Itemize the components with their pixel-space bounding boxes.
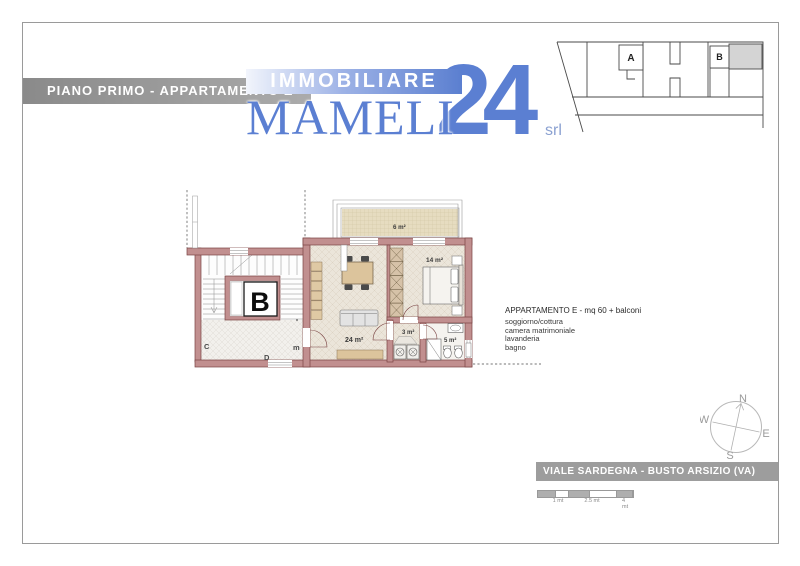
floor-plan: 6 m² 24 m² 14 m² 3 m² 5 m² C m D B [183, 183, 543, 378]
elevator-door [231, 282, 242, 315]
living-area-label: 24 m² [345, 337, 364, 344]
sofa [340, 310, 378, 326]
compass-rose: N W E S [700, 391, 776, 467]
site-unit-a-label: A [627, 53, 634, 64]
description-line: bagno [505, 344, 715, 353]
compass-east-label: E [762, 428, 769, 440]
site-unit-b-label: B [716, 52, 723, 62]
flyer-page: A B PIANO PRIMO - APPARTAMENTO E IMMOBIL… [0, 0, 800, 566]
bathroom-area-label: 5 m² [444, 337, 456, 344]
corridor-floor [201, 320, 303, 360]
scale-bar-segments [537, 490, 634, 498]
letter-c-label: C [204, 342, 210, 351]
logo-name: MAMELI [246, 92, 455, 142]
radiator [466, 343, 471, 357]
bedroom-area-label: 14 m² [426, 257, 444, 264]
description-line: lavanderia [505, 335, 715, 344]
apartment-description-title: APPARTAMENTO E - mq 60 + balconi [505, 306, 715, 315]
balcony-floor [342, 209, 458, 236]
bidet [455, 348, 463, 358]
wardrobe [390, 248, 403, 317]
scale-bar: 1 mt 2.5 mt 4 mt [537, 490, 637, 508]
site-gray-block [729, 44, 762, 69]
toilet [444, 348, 452, 358]
elevator-label: B [250, 287, 270, 317]
compass-needle [708, 399, 765, 456]
sideboard [337, 350, 383, 359]
scale-label-1: 1 mt [553, 498, 564, 504]
compass-west-label: W [700, 414, 710, 426]
letter-d-label: D [264, 353, 270, 362]
laundry-area-label: 3 m² [402, 329, 414, 336]
scale-label-3: 4 mt [622, 498, 632, 510]
site-plan: A B [548, 25, 780, 137]
apartment-description: APPARTAMENTO E - mq 60 + balconi soggior… [505, 306, 715, 352]
address-banner: VIALE SARDEGNA - BUSTO ARSIZIO (VA) [536, 462, 778, 481]
compass-north-label: N [739, 393, 747, 405]
letter-m-label: m [293, 343, 300, 352]
logo-suffix: srl [545, 122, 562, 140]
compass-south-label: S [726, 450, 733, 462]
balcony-door-leaf [341, 245, 347, 271]
balcony-area-label: 6 m² [393, 224, 406, 231]
scale-label-2: 2.5 mt [584, 498, 599, 504]
site-boundary-diagonal [557, 42, 583, 132]
